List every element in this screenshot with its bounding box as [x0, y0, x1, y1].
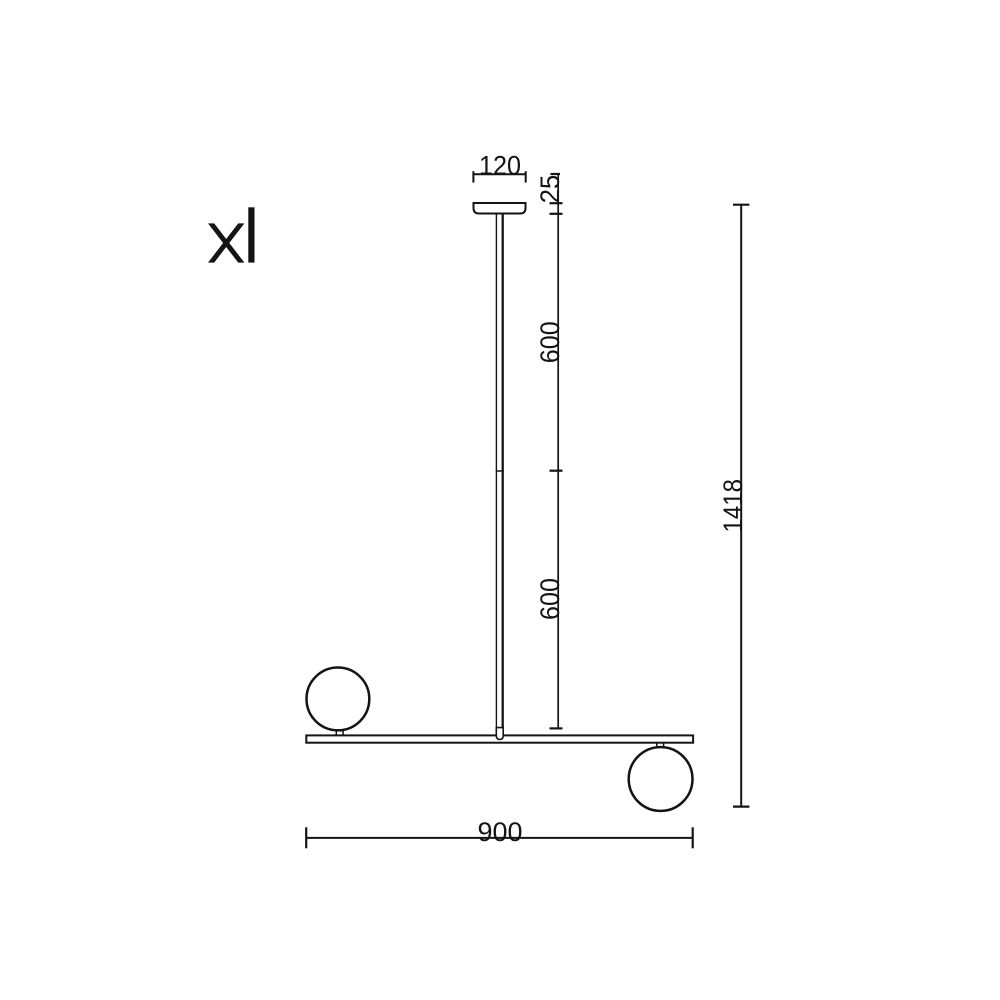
- svg-text:600: 600: [535, 578, 565, 620]
- svg-text:120: 120: [479, 150, 521, 180]
- svg-text:900: 900: [478, 817, 523, 847]
- svg-text:600: 600: [535, 321, 565, 363]
- svg-text:1418: 1418: [718, 479, 748, 533]
- svg-text:25: 25: [535, 175, 565, 204]
